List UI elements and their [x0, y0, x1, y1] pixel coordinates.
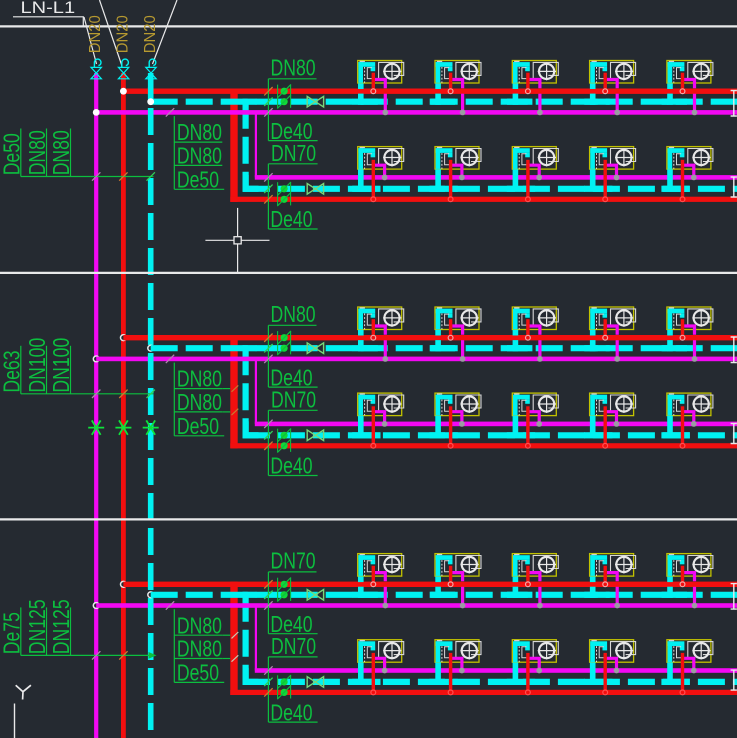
svg-text:DN20: DN20 — [114, 15, 132, 53]
svg-text:De63: De63 — [0, 350, 25, 392]
svg-text:DN80: DN80 — [271, 55, 316, 81]
svg-text:DN80: DN80 — [25, 130, 51, 175]
svg-text:De75: De75 — [0, 612, 25, 654]
svg-text:DN125: DN125 — [49, 599, 75, 654]
svg-text:De50: De50 — [0, 133, 25, 175]
svg-text:DN100: DN100 — [25, 338, 51, 393]
svg-text:DN70: DN70 — [271, 548, 316, 574]
svg-text:DN80: DN80 — [49, 130, 75, 175]
svg-text:DN100: DN100 — [49, 338, 75, 393]
svg-text:DN125: DN125 — [25, 599, 51, 654]
svg-text:LN-L1: LN-L1 — [21, 0, 76, 17]
svg-text:DN20: DN20 — [141, 15, 159, 53]
svg-text:DN80: DN80 — [271, 302, 316, 328]
svg-text:DN20: DN20 — [87, 15, 105, 53]
